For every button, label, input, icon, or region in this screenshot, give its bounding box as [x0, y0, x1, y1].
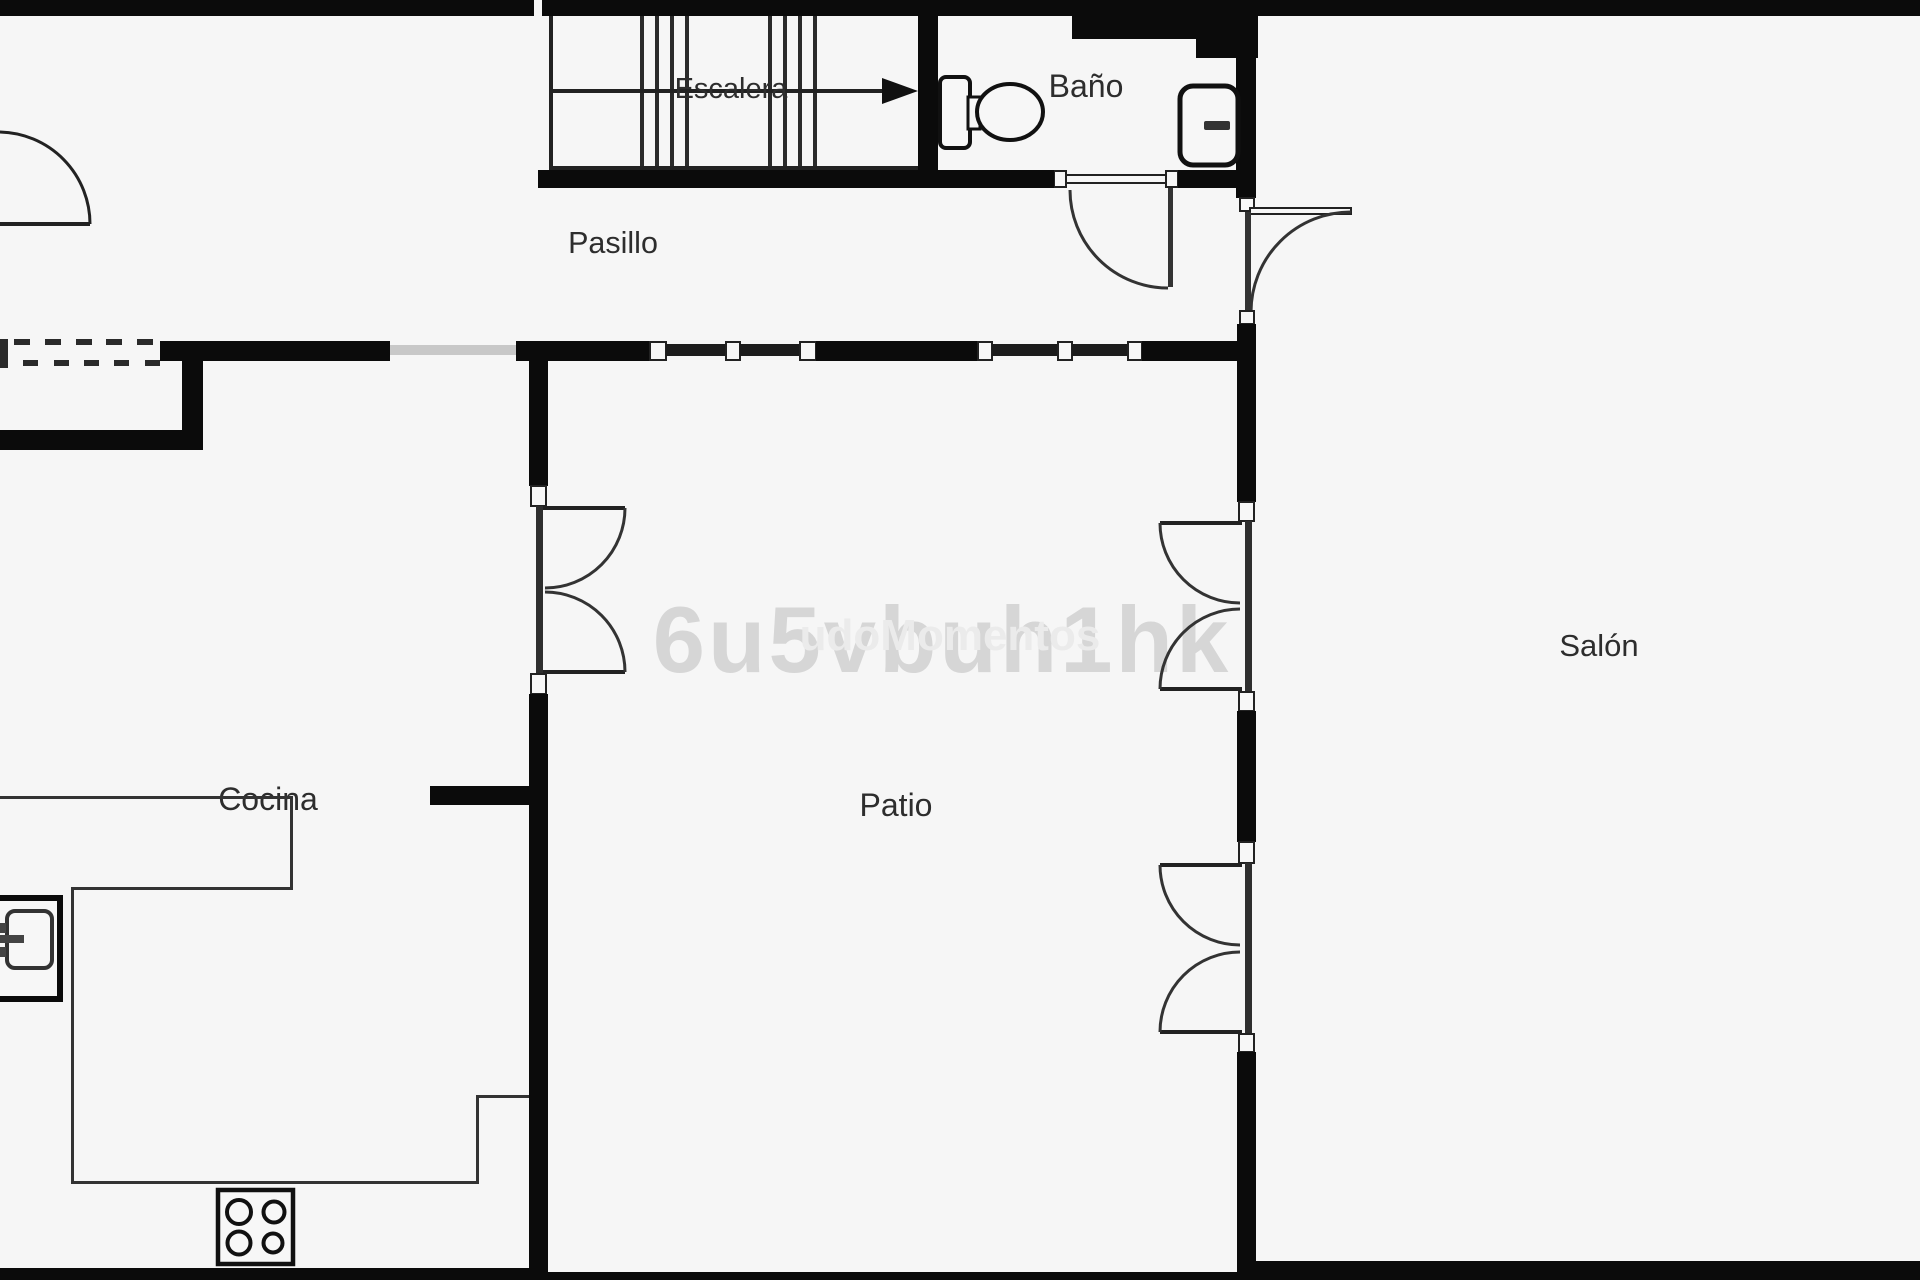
- svg-text:udoMomentos: udoMomentos: [800, 611, 1101, 660]
- svg-text:Baño: Baño: [1049, 68, 1124, 104]
- svg-text:Salón: Salón: [1559, 628, 1638, 663]
- svg-text:Patio: Patio: [860, 787, 933, 823]
- svg-text:Pasillo: Pasillo: [568, 226, 658, 260]
- svg-text:Escalera: Escalera: [675, 73, 789, 105]
